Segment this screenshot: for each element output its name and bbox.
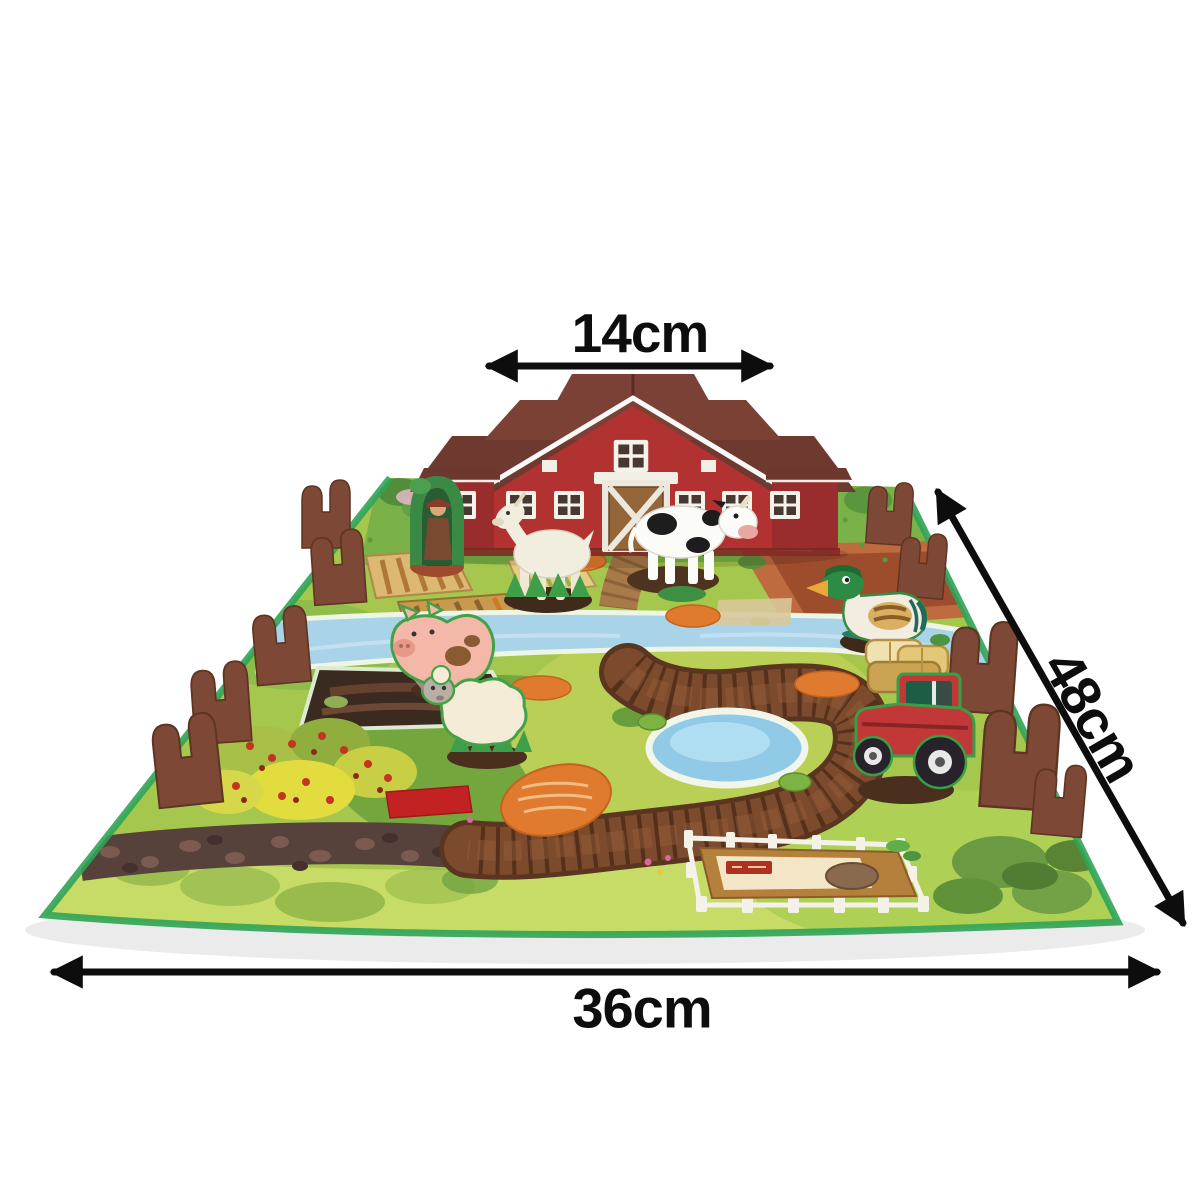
farm-playset-product-photo: 14cm 48cm 36cm [0,0,1200,1200]
farmer-figure [409,476,464,577]
barn-gable-window [614,440,649,472]
red-patch [386,786,472,818]
lily-pad [638,714,666,730]
barn-window [554,491,584,519]
barn-window [770,491,800,519]
barn-width-label: 14cm [572,301,709,365]
lily-pad [779,773,811,791]
river-bank [716,598,792,626]
mat-width-label: 36cm [572,976,711,1041]
